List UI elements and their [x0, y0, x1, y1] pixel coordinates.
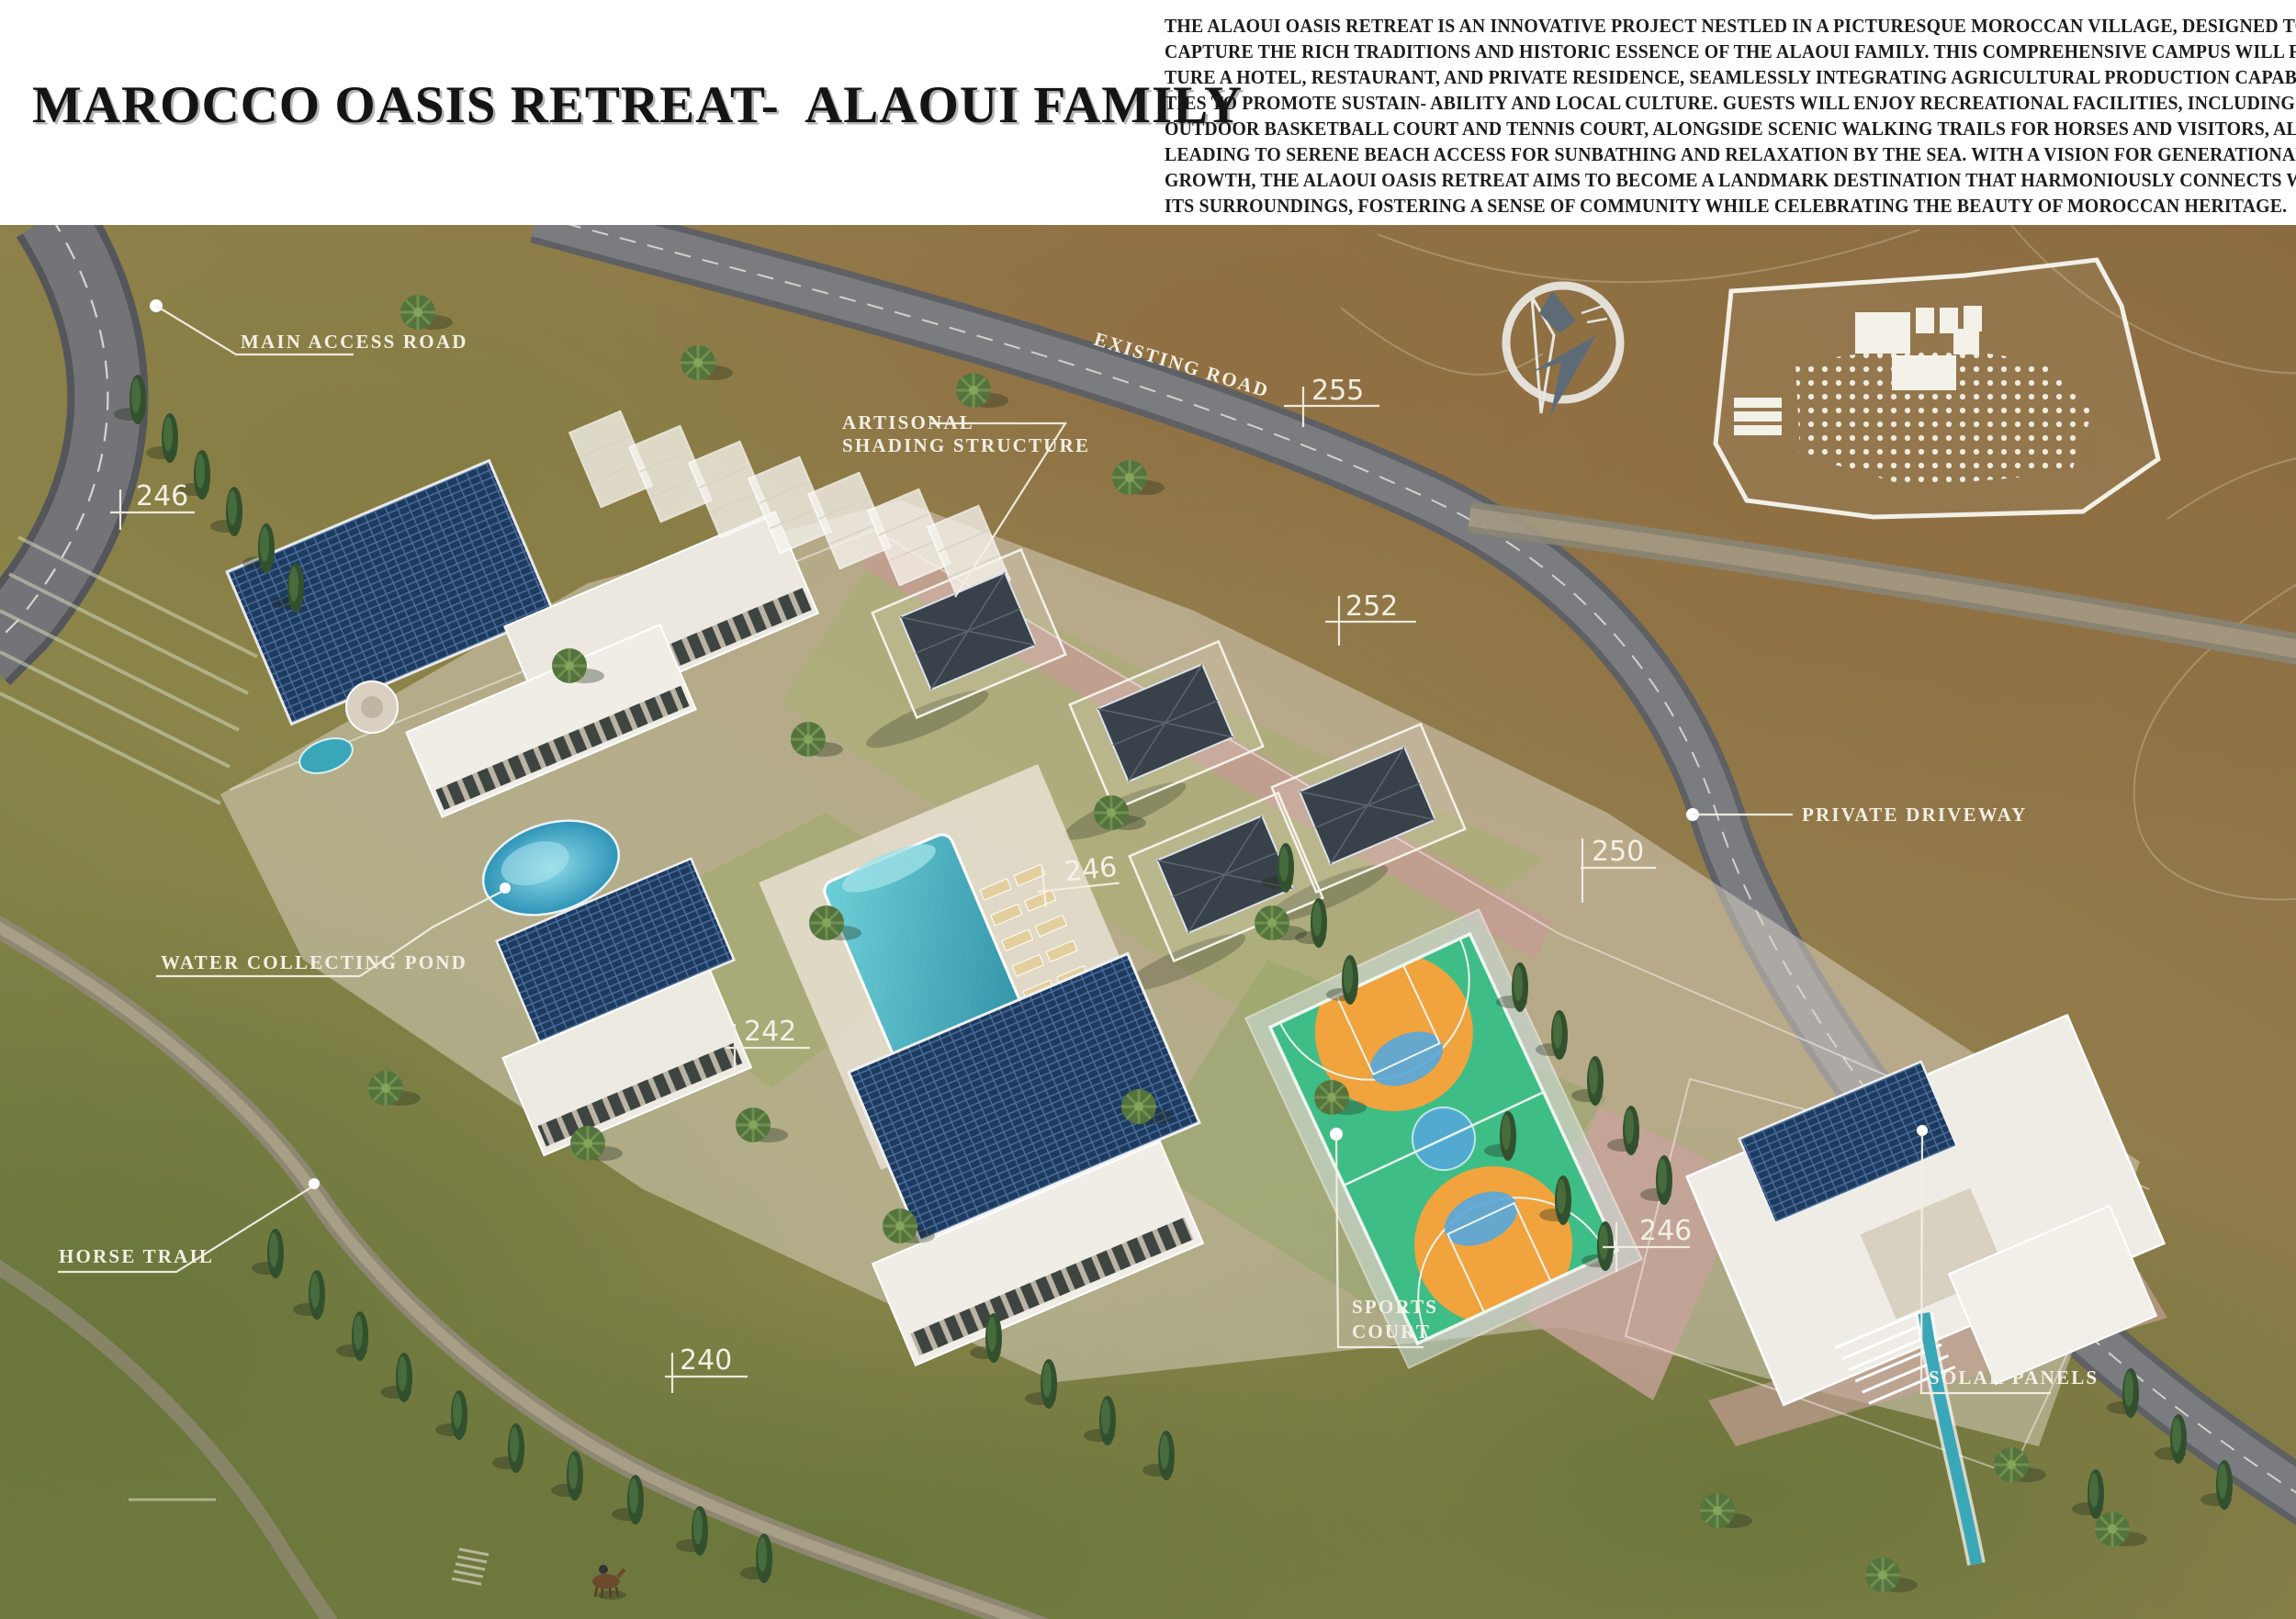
svg-text:242: 242 — [744, 1016, 796, 1048]
svg-text:MAIN ACCESS ROAD: MAIN ACCESS ROAD — [241, 331, 468, 353]
key-map — [1716, 260, 2158, 517]
description-line: CAPTURE THE RICH TRADITIONS AND HISTORIC… — [1165, 39, 2296, 64]
svg-text:255: 255 — [1311, 375, 1364, 407]
svg-text:246: 246 — [136, 480, 188, 512]
svg-text:246: 246 — [1063, 851, 1119, 889]
description-line: ITS SURROUNDINGS, FOSTERING A SENSE OF C… — [1165, 193, 2287, 219]
svg-text:246: 246 — [1639, 1215, 1692, 1247]
svg-text:250: 250 — [1592, 836, 1644, 868]
aerial-rendering: MAIN ACCESS ROAD EXISTING ROAD ARTISONAL… — [0, 225, 2296, 1619]
svg-text:PRIVATE DRIVEWAY: PRIVATE DRIVEWAY — [1802, 804, 2027, 826]
description-line: LEADING TO SERENE BEACH ACCESS FOR SUNBA… — [1165, 141, 2296, 167]
svg-text:240: 240 — [680, 1344, 732, 1377]
description-line: OUTDOOR BASKETBALL COURT AND TENNIS COUR… — [1165, 116, 2296, 141]
svg-text:WATER COLLECTING POND: WATER COLLECTING POND — [161, 951, 467, 973]
description-line: THE ALAOUI OASIS RETREAT IS AN INNOVATIV… — [1165, 13, 2296, 39]
svg-text:252: 252 — [1345, 590, 1398, 623]
svg-text:SPORTS: SPORTS — [1352, 1296, 1438, 1318]
description-line: TIES TO PROMOTE SUSTAIN- ABILITY AND LOC… — [1165, 90, 2296, 116]
svg-text:COURT: COURT — [1352, 1321, 1431, 1343]
description-line: GROWTH, THE ALAOUI OASIS RETREAT AIMS TO… — [1165, 167, 2296, 193]
svg-text:ARTISONAL: ARTISONAL — [842, 411, 974, 433]
description-line: TURE A HOTEL, RESTAURANT, AND PRIVATE RE… — [1165, 64, 2296, 90]
courtyard-fountain-center — [361, 696, 383, 718]
svg-text:SHADING STRUCTURE: SHADING STRUCTURE — [842, 434, 1090, 456]
page-title: MAROCCO OASIS RETREAT- ALAOUI FAMILY — [32, 75, 1243, 135]
svg-text:SOLAR PANELS: SOLAR PANELS — [1929, 1366, 2099, 1389]
presentation-board: MAROCCO OASIS RETREAT- ALAOUI FAMILY THE… — [0, 0, 2296, 1619]
svg-text:HORSE TRAIL: HORSE TRAIL — [59, 1245, 214, 1267]
project-description: THE ALAOUI OASIS RETREAT IS AN INNOVATIV… — [1165, 13, 2294, 219]
